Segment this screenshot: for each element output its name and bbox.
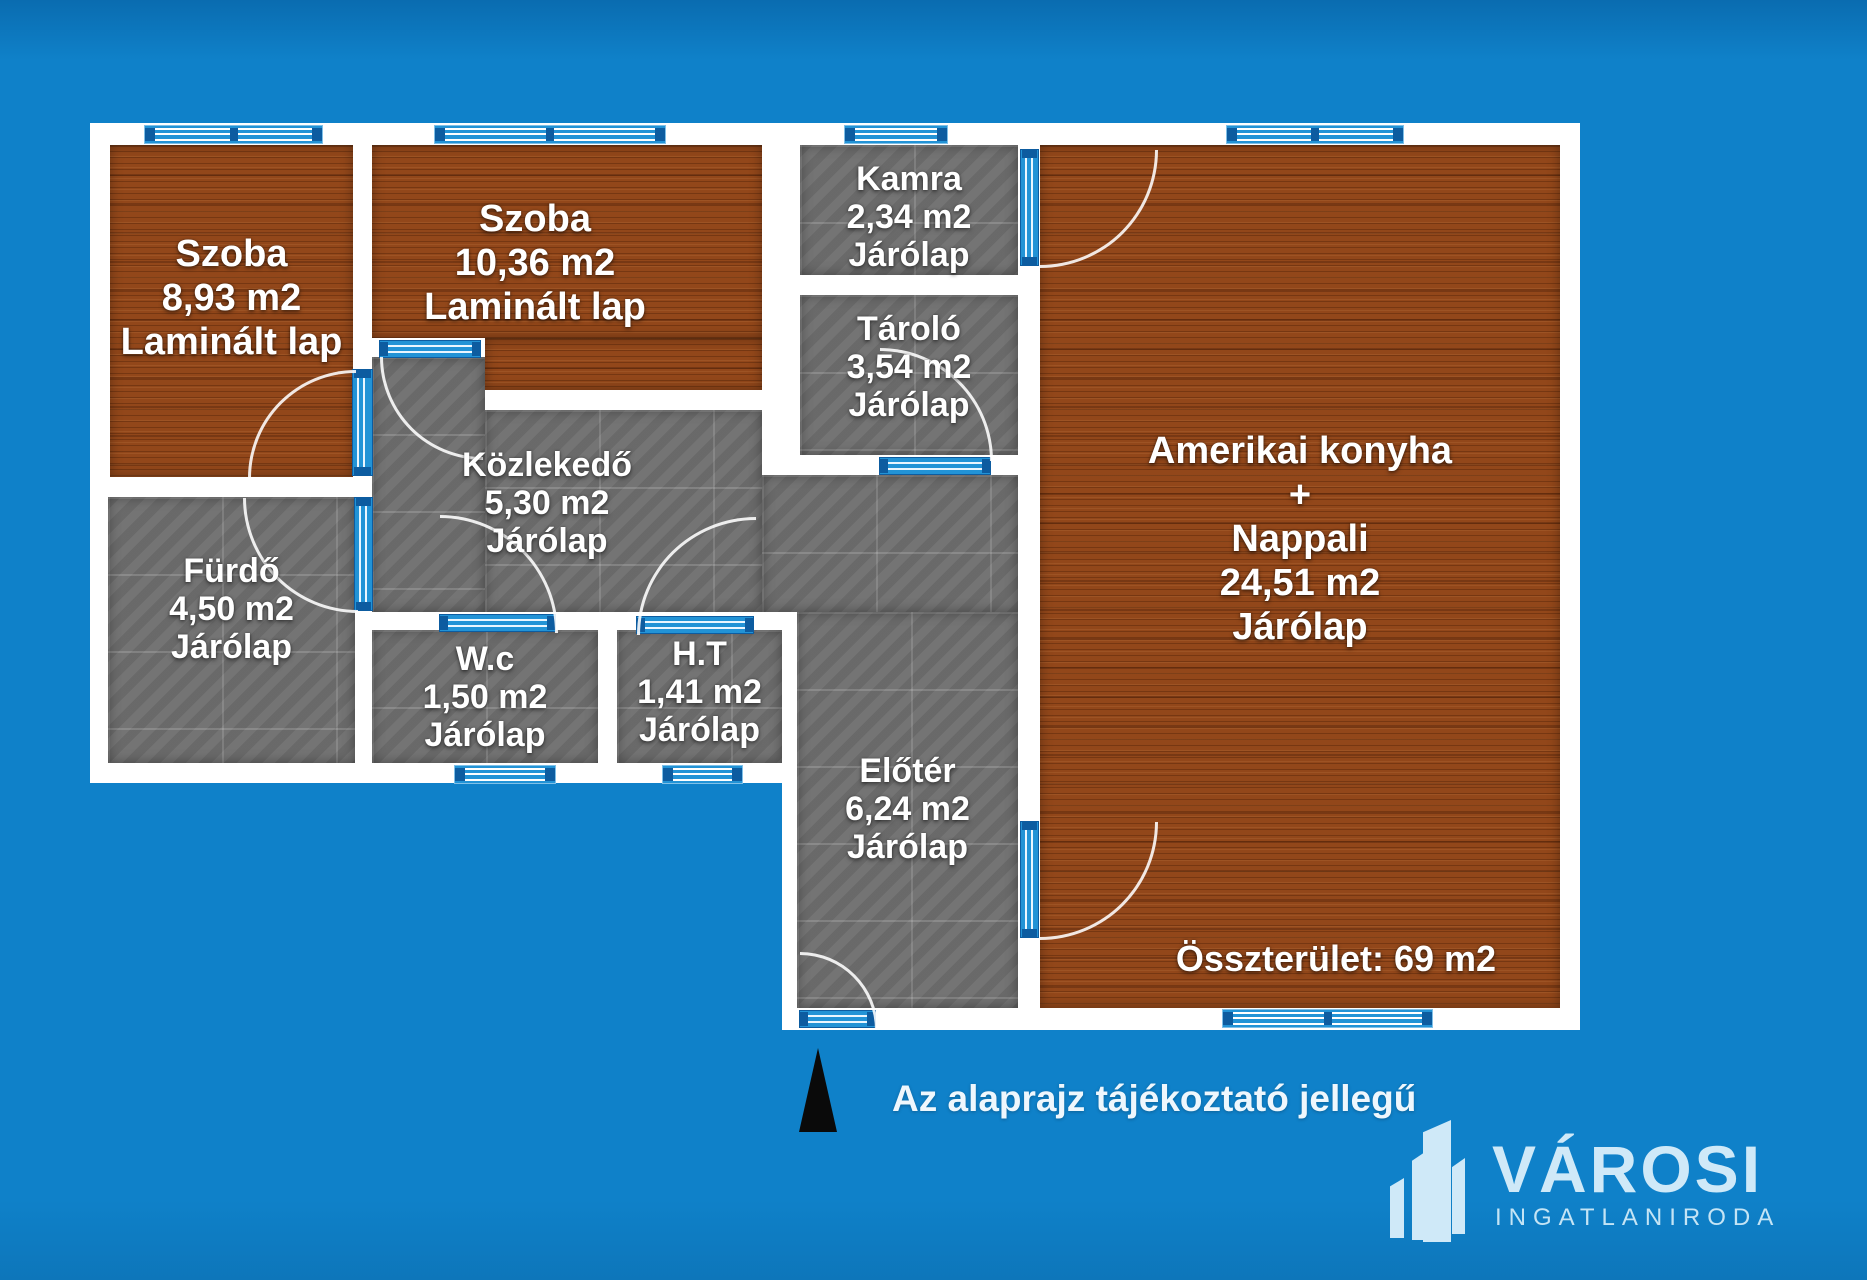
window-mullion [1311,128,1319,141]
total-area-label: Összterület: 69 m2 [1076,938,1596,980]
room-name: H.T [617,635,782,673]
room-floor-type: Járólap [800,386,1018,424]
door-eloter-nappali [1021,822,1038,937]
room-floor-type: Járólap [800,236,1018,274]
room-area: 6,24 m2 [797,790,1018,828]
window [1227,126,1403,143]
room-label-kozlekedo: Közlekedő 5,30 m2 Járólap [372,446,722,560]
room-area: 4,50 m2 [108,590,355,628]
room-floor-type: Járólap [372,522,722,560]
room-label-furdo: Fürdő 4,50 m2 Járólap [108,552,355,666]
room-label-eloter: Előtér 6,24 m2 Járólap [797,752,1018,866]
buildings-icon-wing [1452,1158,1465,1234]
room-name: Amerikai konyha [1040,429,1560,473]
room-name: Fürdő [108,552,355,590]
room-kozlekedo-floor-right [762,475,1018,612]
room-label-szoba-2: Szoba 10,36 m2 Laminált lap [340,197,730,329]
total-area-value: Összterület: 69 m2 [1076,938,1596,980]
window-mullion [546,128,554,141]
buildings-icon [1388,1118,1468,1242]
window [845,126,947,143]
room-name-plus: + [1040,473,1560,517]
room-area: 2,34 m2 [800,198,1018,236]
room-floor-type: Járólap [108,628,355,666]
room-name: Szoba [110,232,353,276]
room-label-szoba-1: Szoba 8,93 m2 Laminált lap [110,232,353,364]
room-name-2: Nappali [1040,517,1560,561]
room-name: Szoba [340,197,730,241]
room-area: 3,54 m2 [800,348,1018,386]
agency-logo-name: VÁROSI [1492,1136,1763,1202]
room-name: W.c [372,640,598,678]
buildings-icon-bar-small [1390,1178,1404,1238]
room-area: 5,30 m2 [372,484,722,522]
room-label-nappali: Amerikai konyha + Nappali 24,51 m2 Járól… [1040,429,1560,649]
room-label-ht: H.T 1,41 m2 Járólap [617,635,782,749]
door-szoba-2 [380,341,480,357]
window [1223,1010,1432,1027]
room-area: 10,36 m2 [340,241,730,285]
room-name: Tároló [800,310,1018,348]
room-area: 24,51 m2 [1040,561,1560,605]
window [435,126,665,143]
door-kamra [1021,150,1038,265]
floorplan-canvas: Szoba 8,93 m2 Laminált lap Szoba 10,36 m… [0,0,1867,1280]
window [663,766,742,783]
room-name: Előtér [797,752,1018,790]
north-arrow-icon [799,1048,837,1132]
window-mullion [230,128,238,141]
room-area: 1,50 m2 [372,678,598,716]
room-label-wc: W.c 1,50 m2 Járólap [372,640,598,754]
room-floor-type: Járólap [372,716,598,754]
window [145,126,322,143]
room-szoba-2-floor-extension [485,338,762,390]
room-floor-type: Járólap [1040,605,1560,649]
room-floor-type: Járólap [617,711,782,749]
disclaimer-text: Az alaprajz tájékoztató jellegű [892,1078,1416,1120]
room-area: 1,41 m2 [617,673,782,711]
room-label-tarolo: Tároló 3,54 m2 Járólap [800,310,1018,424]
buildings-icon-tower [1423,1120,1451,1242]
room-floor-type: Laminált lap [110,320,353,364]
room-area: 8,93 m2 [110,276,353,320]
agency-logo: VÁROSI INGATLANIRODA [1388,1118,1808,1258]
room-label-kamra: Kamra 2,34 m2 Járólap [800,160,1018,274]
room-name: Közlekedő [372,446,722,484]
window-mullion [1324,1012,1332,1025]
room-floor-type: Járólap [797,828,1018,866]
window [455,766,555,783]
agency-logo-subtitle: INGATLANIRODA [1495,1206,1780,1230]
room-floor-type: Laminált lap [340,285,730,329]
room-name: Kamra [800,160,1018,198]
